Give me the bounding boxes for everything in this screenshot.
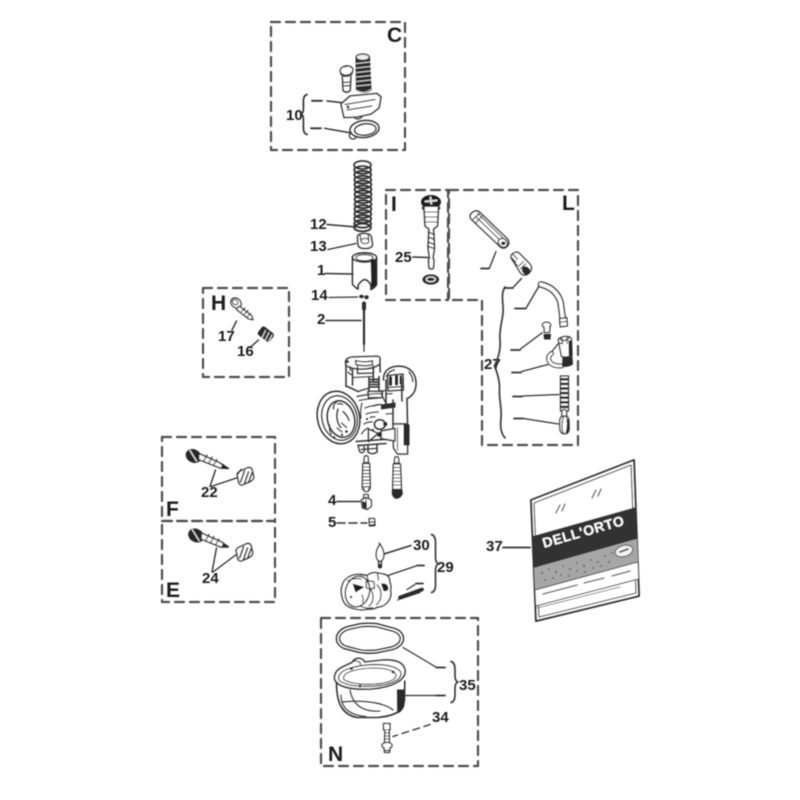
svg-text:4: 4 — [328, 492, 337, 509]
svg-text:E: E — [166, 579, 180, 602]
svg-text:30: 30 — [413, 537, 430, 554]
svg-text:L: L — [562, 192, 575, 215]
svg-text:10: 10 — [286, 107, 303, 124]
svg-text:14: 14 — [311, 287, 328, 304]
svg-text:N: N — [328, 743, 343, 766]
svg-text:29: 29 — [437, 559, 454, 576]
svg-text:25: 25 — [395, 249, 412, 266]
svg-text:12: 12 — [310, 216, 327, 233]
svg-text:37: 37 — [486, 538, 503, 555]
svg-text:5: 5 — [328, 514, 336, 531]
svg-text:C: C — [387, 24, 402, 47]
svg-text:35: 35 — [459, 677, 476, 694]
svg-text:13: 13 — [310, 238, 327, 255]
svg-text:34: 34 — [432, 709, 449, 726]
svg-text:F: F — [166, 498, 179, 521]
svg-text:H: H — [211, 292, 226, 315]
svg-text:1: 1 — [317, 262, 325, 279]
svg-text:24: 24 — [202, 570, 219, 587]
svg-text:I: I — [391, 193, 397, 216]
svg-text:2: 2 — [317, 311, 325, 328]
